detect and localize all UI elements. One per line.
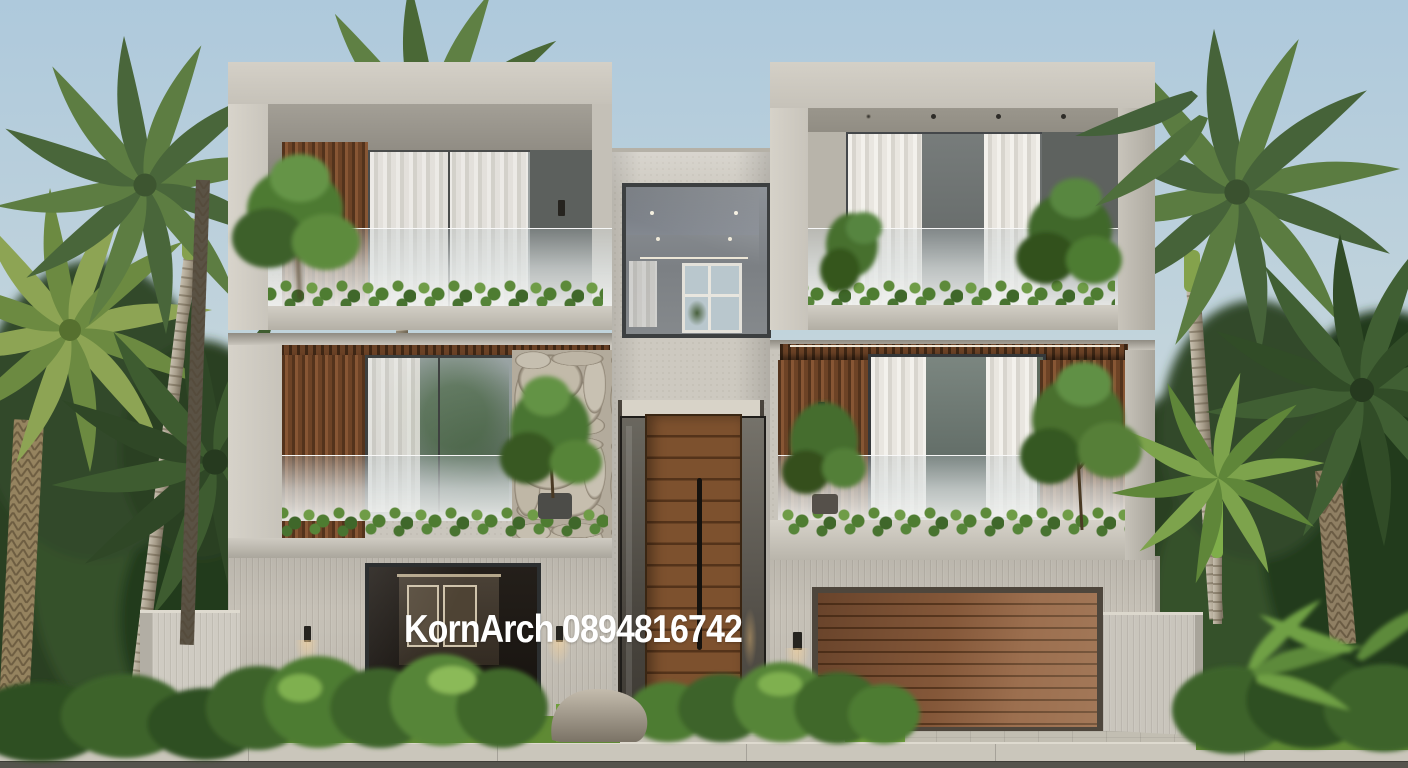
watermark-text: KornArch 0894816742 xyxy=(404,608,742,652)
foreground-vegetation xyxy=(0,0,1408,768)
architectural-render: KornArch 0894816742 xyxy=(0,0,1408,768)
right-shrubs xyxy=(1172,595,1408,754)
boulder xyxy=(551,689,647,742)
front-shrubs xyxy=(0,654,920,762)
balcony-tree-second-floor-right-b xyxy=(1020,362,1142,530)
palm-tree-right-short xyxy=(1112,371,1325,624)
balcony-tree-second-floor-right-a xyxy=(782,402,866,514)
balcony-tree-second-floor-left xyxy=(500,376,602,519)
palm-trunk-foreground-left xyxy=(180,180,210,645)
balcony-tree-third-floor-left xyxy=(232,154,360,300)
balcony-tree-third-floor-right xyxy=(1016,178,1122,284)
balcony-plant-third-floor-right-small xyxy=(820,212,882,292)
